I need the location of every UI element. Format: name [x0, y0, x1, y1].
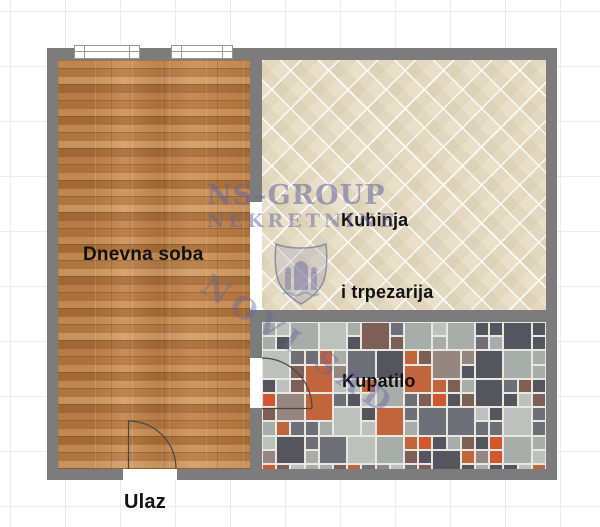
mosaic-tile [462, 437, 474, 449]
mosaic-tile [504, 408, 530, 434]
mosaic-tile [476, 351, 502, 377]
window-tick [181, 46, 182, 58]
mosaic-tile [419, 451, 431, 463]
mosaic-tile [320, 422, 332, 434]
mosaic-tile [306, 422, 318, 434]
mosaic-tile [419, 394, 431, 406]
mosaic-tile [476, 323, 488, 335]
window-symbol-2 [171, 45, 233, 59]
mosaic-tile [504, 394, 516, 406]
mosaic-tile [433, 451, 459, 469]
window-tick [84, 46, 85, 58]
mosaic-tile [490, 422, 502, 434]
mosaic-tile [419, 437, 431, 449]
mosaic-tile [377, 437, 403, 463]
mosaic-tile [433, 394, 445, 406]
mosaic-tile [433, 323, 445, 335]
mosaic-tile [476, 337, 488, 349]
mosaic-tile [504, 323, 530, 349]
mosaic-tile [263, 323, 275, 335]
window-tick [129, 46, 130, 58]
mosaic-tile [263, 394, 275, 406]
mosaic-tile [448, 323, 474, 349]
mosaic-tile [476, 408, 488, 420]
mosaic-tile [462, 351, 474, 363]
mosaic-tile [291, 323, 317, 349]
mosaic-tile [334, 408, 360, 434]
mosaic-tile [306, 451, 318, 463]
mosaic-tile [519, 380, 531, 392]
mosaic-tile [263, 437, 275, 449]
mosaic-tile [405, 408, 417, 420]
mosaic-tile [533, 380, 545, 392]
mosaic-tile [263, 451, 275, 463]
mosaic-tile [448, 380, 460, 392]
mosaic-tile [334, 394, 346, 406]
mosaic-tile [362, 422, 374, 434]
mosaic-tile [306, 351, 318, 363]
mosaic-tile [462, 394, 474, 406]
mosaic-tile [490, 451, 502, 463]
wall-middle-upper [250, 60, 262, 202]
wall-left [47, 48, 58, 480]
mosaic-tile [277, 437, 303, 463]
wall-right [546, 48, 557, 480]
mosaic-tile [291, 366, 303, 378]
mosaic-tile [504, 437, 530, 463]
mosaic-tile [263, 337, 275, 349]
window-tick [222, 46, 223, 58]
mosaic-tile [533, 337, 545, 349]
window-symbol-1 [74, 45, 140, 59]
mosaic-tile [405, 451, 417, 463]
mosaic-tile [476, 422, 488, 434]
label-entrance: Ulaz [124, 491, 166, 514]
mosaic-tile [291, 422, 303, 434]
mosaic-tile [277, 337, 289, 349]
mosaic-tile [533, 437, 545, 449]
label-kitchen-line1: Kuhinja [341, 208, 433, 232]
mosaic-tile [433, 351, 459, 377]
mosaic-tile [263, 380, 275, 392]
mosaic-tile [263, 422, 275, 434]
mosaic-tile [306, 437, 318, 449]
mosaic-tile [533, 366, 545, 378]
mosaic-tile [320, 437, 346, 463]
mosaic-tile [348, 394, 360, 406]
mosaic-tile [448, 437, 460, 449]
mosaic-tile [490, 337, 502, 349]
mosaic-tile [263, 351, 289, 377]
mosaic-tile [334, 351, 346, 363]
mosaic-tile [504, 351, 530, 377]
mosaic-tile [306, 394, 332, 420]
mosaic-tile [462, 366, 474, 378]
opening-entrance-door [123, 469, 177, 480]
mosaic-tile [519, 394, 531, 406]
mosaic-tile [419, 408, 445, 434]
mosaic-tile [306, 366, 332, 392]
mosaic-tile [433, 380, 445, 392]
label-bathroom: Kupatilo [342, 371, 416, 392]
mosaic-tile [433, 437, 445, 449]
mosaic-tile [490, 437, 502, 449]
label-kitchen-dining: Kuhinja i trpezarija [341, 160, 433, 352]
mosaic-tile [533, 351, 545, 363]
mosaic-tile [277, 394, 303, 420]
mosaic-tile [533, 408, 545, 420]
label-kitchen-line2: i trpezarija [341, 280, 433, 304]
mosaic-tile [419, 351, 431, 363]
mosaic-tile [433, 337, 445, 349]
mosaic-tile [405, 422, 417, 434]
mosaic-tile [277, 422, 289, 434]
mosaic-tile [462, 451, 474, 463]
mosaic-tile [291, 380, 303, 392]
mosaic-tile [362, 408, 374, 420]
mosaic-tile [405, 394, 417, 406]
mosaic-tile [462, 380, 474, 392]
mosaic-tile [476, 437, 488, 449]
mosaic-tile [448, 408, 474, 434]
mosaic-tile [476, 380, 502, 406]
mosaic-tile [277, 323, 289, 335]
mosaic-tile [277, 380, 289, 392]
mosaic-tile [533, 451, 545, 463]
mosaic-tile [362, 394, 374, 406]
mosaic-tile [348, 437, 374, 463]
mosaic-tile [533, 394, 545, 406]
floor-plan-canvas: Dnevna soba Kuhinja i trpezarija Kupatil… [0, 0, 600, 527]
mosaic-tile [405, 437, 417, 449]
mosaic-tile [377, 408, 403, 434]
mosaic-tile [263, 408, 275, 420]
mosaic-tile [320, 351, 332, 363]
mosaic-tile [504, 380, 516, 392]
mosaic-tile [476, 451, 488, 463]
label-living-room: Dnevna soba [83, 244, 203, 266]
opening-bathroom-door [250, 358, 262, 408]
mosaic-tile [490, 408, 502, 420]
wall-middle-mid [250, 322, 262, 358]
mosaic-tile [533, 323, 545, 335]
opening-kitchen-passage [250, 202, 262, 310]
mosaic-tile [490, 323, 502, 335]
mosaic-tile [533, 422, 545, 434]
mosaic-tile [448, 394, 460, 406]
mosaic-tile [291, 351, 303, 363]
wall-middle-lower [250, 408, 262, 469]
mosaic-tile [405, 351, 417, 363]
